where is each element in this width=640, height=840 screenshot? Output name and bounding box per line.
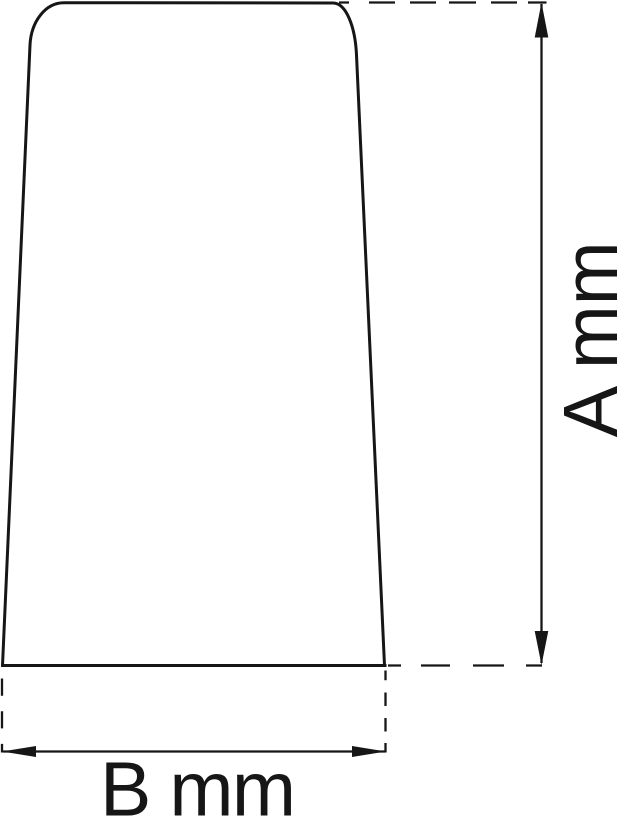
svg-text:B mm: B mm	[100, 747, 296, 833]
svg-text:A mm: A mm	[548, 241, 634, 437]
